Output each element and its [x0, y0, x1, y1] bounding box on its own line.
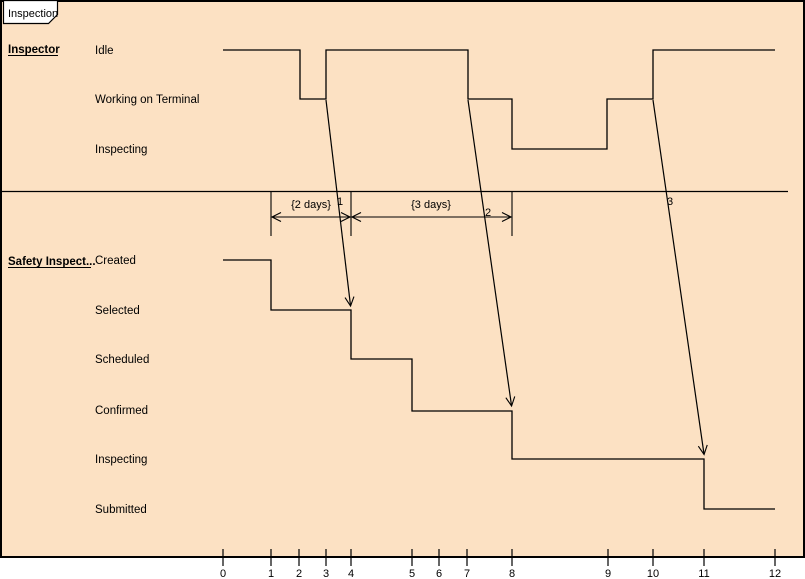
- axis-tick-label-7: 7: [464, 568, 470, 579]
- axis-tick-label-12: 12: [769, 568, 781, 579]
- state-label-scheduled[interactable]: Scheduled: [95, 354, 149, 366]
- message-3-label[interactable]: 3: [667, 196, 673, 208]
- state-label-selected[interactable]: Selected: [95, 305, 140, 317]
- state-label-working-on-terminal[interactable]: Working on Terminal: [95, 94, 199, 106]
- state-label-idle[interactable]: Idle: [95, 45, 114, 57]
- timing-diagram-canvas: Inspection Inspector Idle Working on Ter…: [0, 0, 805, 579]
- message-1-label[interactable]: 1: [337, 196, 343, 208]
- state-label-inspecting-safety[interactable]: Inspecting: [95, 454, 147, 466]
- axis-tick-label-8: 8: [509, 568, 515, 579]
- timing-diagram: Inspection Inspector Idle Working on Ter…: [0, 0, 805, 579]
- lifeline-name-safety-inspection[interactable]: Safety Inspect...: [8, 256, 96, 268]
- axis-tick-label-5: 5: [409, 568, 415, 579]
- state-label-confirmed[interactable]: Confirmed: [95, 405, 148, 417]
- duration-constraint-2days-label[interactable]: {2 days}: [291, 199, 331, 211]
- axis-tick-label-3: 3: [323, 568, 329, 579]
- axis-tick-label-1: 1: [268, 568, 274, 579]
- axis-tick-label-0: 0: [220, 568, 226, 579]
- diagram-frame: [1, 1, 804, 557]
- axis-tick-label-4: 4: [348, 568, 354, 579]
- axis-tick-label-9: 9: [605, 568, 611, 579]
- axis-tick-label-6: 6: [436, 568, 442, 579]
- axis-tick-label-10: 10: [647, 568, 659, 579]
- state-label-submitted[interactable]: Submitted: [95, 504, 147, 516]
- duration-constraint-3days-label[interactable]: {3 days}: [411, 199, 451, 211]
- axis-tick-label-2: 2: [296, 568, 302, 579]
- axis-tick-label-11: 11: [698, 568, 709, 579]
- state-label-inspecting-inspector[interactable]: Inspecting: [95, 144, 147, 156]
- state-label-created[interactable]: Created: [95, 255, 136, 267]
- lifeline-name-inspector[interactable]: Inspector: [8, 44, 60, 56]
- frame-title[interactable]: Inspection: [8, 8, 58, 20]
